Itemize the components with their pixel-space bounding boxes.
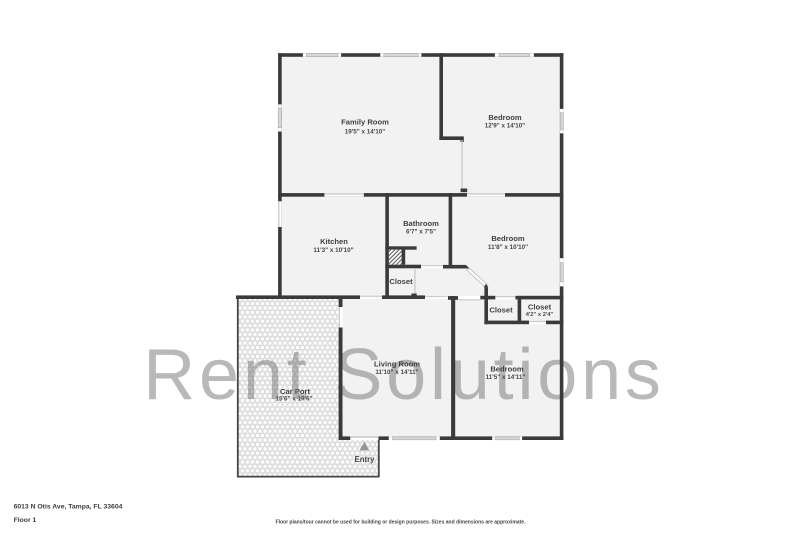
svg-text:4'2" x 2'4": 4'2" x 2'4" bbox=[526, 312, 554, 318]
svg-text:11'10" x 14'11": 11'10" x 14'11" bbox=[375, 369, 418, 376]
svg-text:19'5" x 14'10": 19'5" x 14'10" bbox=[345, 129, 385, 136]
svg-text:Floor 1: Floor 1 bbox=[14, 517, 37, 524]
svg-text:6'7" x 7'5": 6'7" x 7'5" bbox=[406, 229, 436, 236]
svg-text:Floor plans/tour cannot be use: Floor plans/tour cannot be used for buil… bbox=[276, 519, 527, 525]
svg-text:12'9" x 14'10": 12'9" x 14'10" bbox=[485, 123, 525, 130]
svg-text:Bathroom: Bathroom bbox=[403, 219, 439, 228]
svg-text:Bedroom: Bedroom bbox=[491, 234, 525, 243]
svg-text:Bedroom: Bedroom bbox=[488, 113, 522, 122]
svg-text:Entry: Entry bbox=[355, 455, 376, 464]
svg-text:Closet: Closet bbox=[389, 277, 413, 286]
svg-text:Living Room: Living Room bbox=[374, 359, 420, 368]
svg-text:Kitchen: Kitchen bbox=[320, 237, 348, 246]
svg-text:11'8" x 10'10": 11'8" x 10'10" bbox=[488, 244, 528, 251]
svg-text:Closet: Closet bbox=[528, 303, 552, 312]
svg-text:6013 N Otis Ave, Tampa, FL 336: 6013 N Otis Ave, Tampa, FL 33604 bbox=[14, 504, 123, 511]
svg-text:Family Room: Family Room bbox=[341, 118, 389, 127]
svg-text:Bedroom: Bedroom bbox=[490, 364, 524, 373]
svg-text:Closet: Closet bbox=[489, 306, 513, 315]
svg-text:11'5" x 14'11": 11'5" x 14'11" bbox=[486, 374, 526, 381]
svg-text:11'3" x 10'10": 11'3" x 10'10" bbox=[313, 247, 353, 254]
